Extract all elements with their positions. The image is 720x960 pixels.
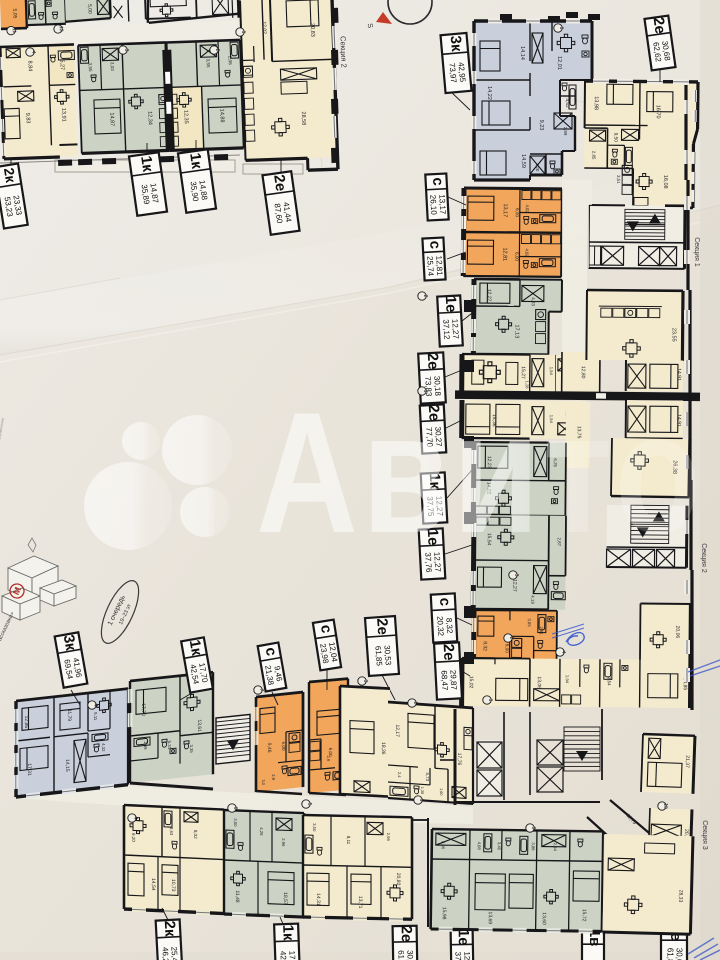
svg-text:13,91: 13,91 (60, 108, 66, 122)
svg-text:Секция 1: Секция 1 (693, 237, 700, 267)
svg-text:8,02: 8,02 (193, 830, 198, 840)
svg-text:3,09: 3,09 (527, 618, 532, 627)
svg-text:2,94: 2,94 (553, 843, 558, 852)
svg-text:17,76: 17,76 (456, 753, 462, 766)
svg-text:15,98: 15,98 (441, 907, 447, 920)
svg-text:3,03: 3,03 (110, 62, 115, 72)
svg-text:12,01: 12,01 (556, 56, 562, 70)
svg-text:25,74: 25,74 (425, 256, 435, 277)
svg-text:6,00: 6,00 (515, 208, 520, 217)
svg-text:6: 6 (232, 807, 238, 810)
svg-text:3,88: 3,88 (531, 842, 536, 851)
svg-text:13,71: 13,71 (357, 896, 363, 909)
svg-text:1,60: 1,60 (439, 788, 443, 796)
svg-text:Секция 2: Секция 2 (338, 36, 348, 68)
svg-text:12,17: 12,17 (394, 724, 400, 737)
svg-text:73,97: 73,97 (447, 63, 458, 84)
svg-text:8,84: 8,84 (26, 61, 32, 72)
svg-text:2: 2 (214, 49, 220, 52)
svg-text:13,06: 13,06 (536, 676, 542, 689)
svg-text:3к: 3к (447, 35, 465, 53)
svg-text:4,52: 4,52 (564, 98, 570, 108)
svg-text:14,88: 14,88 (218, 109, 224, 123)
svg-text:1к: 1к (279, 924, 297, 941)
svg-text:20,06: 20,06 (674, 626, 680, 639)
svg-text:16,08: 16,08 (662, 175, 668, 189)
svg-text:12: 12 (58, 26, 64, 32)
svg-text:3,35: 3,35 (189, 744, 194, 753)
svg-text:2,96: 2,96 (441, 841, 446, 850)
svg-text:2е: 2е (650, 16, 669, 35)
svg-text:9,20: 9,20 (131, 833, 136, 843)
svg-text:21,37: 21,37 (684, 755, 690, 768)
svg-text:12,2: 12,2 (462, 951, 471, 960)
svg-text:1,38: 1,38 (420, 787, 424, 795)
svg-text:16,70: 16,70 (655, 105, 661, 119)
svg-text:11: 11 (11, 28, 17, 34)
svg-text:28,33: 28,33 (677, 890, 683, 903)
svg-text:37,7: 37,7 (453, 952, 462, 960)
svg-text:12,80: 12,80 (580, 366, 586, 379)
svg-text:4,32: 4,32 (101, 743, 106, 752)
svg-text:2: 2 (422, 295, 428, 298)
svg-text:1: 1 (558, 27, 564, 30)
svg-text:46,2: 46,2 (160, 947, 170, 960)
svg-text:23,55: 23,55 (671, 328, 677, 342)
svg-text:61,1: 61,1 (396, 950, 405, 960)
svg-text:3,55: 3,55 (88, 63, 93, 73)
svg-text:14,59: 14,59 (520, 154, 526, 168)
svg-text:2: 2 (508, 637, 514, 640)
svg-text:14,14: 14,14 (519, 46, 525, 60)
svg-text:18,36: 18,36 (380, 742, 386, 755)
svg-text:2: 2 (412, 702, 418, 705)
svg-text:13,61: 13,61 (196, 719, 202, 732)
svg-text:Секция 3: Секция 3 (701, 820, 708, 850)
svg-text:4,19: 4,19 (530, 595, 535, 604)
svg-text:3: 3 (123, 49, 129, 52)
svg-text:2,89: 2,89 (563, 127, 568, 136)
svg-text:9,83: 9,83 (24, 113, 30, 124)
svg-text:9,11: 9,11 (93, 712, 98, 721)
svg-text:2,96: 2,96 (386, 833, 391, 842)
svg-text:11,48: 11,48 (234, 890, 240, 903)
svg-text:13,69: 13,69 (487, 912, 493, 925)
svg-text:14,54: 14,54 (150, 878, 156, 891)
svg-text:4: 4 (30, 51, 36, 54)
svg-text:6,00: 6,00 (281, 741, 286, 751)
svg-text:18,57: 18,57 (282, 892, 288, 905)
svg-text:1,94: 1,94 (549, 367, 554, 376)
svg-text:3: 3 (513, 574, 519, 577)
svg-text:2е: 2е (373, 618, 391, 636)
svg-text:61,8: 61,8 (665, 948, 674, 960)
svg-text:12,34: 12,34 (146, 111, 152, 125)
svg-text:17,70: 17,70 (140, 703, 146, 716)
svg-text:6,00: 6,00 (505, 644, 510, 653)
svg-text:14,22: 14,22 (486, 86, 492, 100)
svg-text:4,28: 4,28 (259, 827, 264, 836)
svg-text:4: 4 (560, 651, 566, 654)
svg-text:12,86: 12,86 (23, 715, 29, 728)
svg-text:15,72: 15,72 (581, 909, 587, 922)
svg-text:1: 1 (418, 799, 424, 802)
svg-text:5,73: 5,73 (425, 772, 430, 781)
svg-text:3,46: 3,46 (497, 842, 502, 851)
svg-text:8,32: 8,32 (482, 641, 488, 651)
svg-text:17,13: 17,13 (513, 324, 519, 338)
svg-text:10,73: 10,73 (170, 879, 176, 892)
svg-text:30,6: 30,6 (674, 948, 683, 960)
svg-text:17,31: 17,31 (26, 763, 32, 776)
svg-text:15,02: 15,02 (468, 676, 474, 689)
svg-text:5: 5 (306, 803, 312, 806)
svg-text:3,54: 3,54 (607, 677, 612, 686)
svg-text:4,02: 4,02 (524, 248, 529, 257)
svg-text:с: с (436, 597, 453, 606)
svg-text:68,47: 68,47 (439, 670, 449, 691)
svg-text:10: 10 (662, 803, 668, 809)
svg-text:2,91: 2,91 (539, 626, 544, 635)
svg-text:11,79: 11,79 (66, 709, 72, 722)
svg-text:6,00: 6,00 (514, 252, 519, 261)
svg-text:1к: 1к (137, 155, 156, 174)
svg-text:1: 1 (487, 699, 493, 702)
svg-text:42,1: 42,1 (278, 951, 288, 960)
svg-text:5,27: 5,27 (58, 59, 64, 70)
svg-text:1е: 1е (455, 929, 472, 946)
svg-text:30,2: 30,2 (405, 950, 414, 960)
svg-text:4: 4 (92, 704, 98, 707)
svg-text:Авито: Авито (256, 378, 705, 569)
svg-text:3,50: 3,50 (312, 823, 317, 832)
svg-text:2к: 2к (161, 920, 179, 937)
svg-text:4,02: 4,02 (525, 204, 530, 213)
svg-text:20,32: 20,32 (435, 616, 445, 637)
svg-text:12,02: 12,02 (261, 21, 267, 34)
svg-text:4,08: 4,08 (477, 842, 482, 851)
svg-text:13,60: 13,60 (541, 912, 547, 925)
svg-text:с: с (426, 240, 443, 249)
svg-text:2,96: 2,96 (281, 838, 286, 847)
svg-text:2,20: 2,20 (535, 163, 540, 172)
svg-text:14,87: 14,87 (108, 112, 114, 126)
svg-text:3,63: 3,63 (169, 827, 174, 836)
svg-text:12,27: 12,27 (511, 579, 517, 592)
svg-text:14,15: 14,15 (64, 759, 70, 772)
svg-text:13,17: 13,17 (502, 203, 508, 217)
svg-text:14,31: 14,31 (315, 893, 321, 906)
svg-text:8,11: 8,11 (346, 836, 351, 845)
svg-text:26,10: 26,10 (428, 195, 438, 216)
svg-text:2е: 2е (398, 925, 415, 942)
svg-text:3,50: 3,50 (233, 818, 238, 827)
svg-text:9,46: 9,46 (266, 742, 272, 753)
svg-text:3: 3 (362, 680, 368, 683)
svg-text:20,80: 20,80 (395, 873, 401, 886)
svg-text:1к: 1к (186, 152, 205, 171)
svg-text:20,83: 20,83 (309, 23, 315, 37)
svg-text:17,8: 17,8 (287, 950, 297, 960)
svg-text:12,35: 12,35 (182, 110, 188, 124)
svg-text:28,58: 28,58 (300, 111, 306, 125)
svg-text:2,85: 2,85 (591, 151, 596, 160)
svg-text:9,23: 9,23 (538, 120, 544, 131)
svg-text:4,83: 4,83 (531, 297, 536, 306)
svg-text:4: 4 (132, 817, 138, 820)
svg-text:1: 1 (240, 31, 246, 34)
svg-text:7: 7 (258, 689, 264, 692)
svg-text:61,85: 61,85 (373, 646, 383, 667)
svg-text:12,27: 12,27 (486, 289, 492, 302)
svg-text:2е: 2е (270, 173, 289, 192)
svg-text:2е: 2е (440, 643, 458, 661)
svg-text:2е: 2е (424, 352, 442, 370)
svg-text:9: 9 (530, 827, 536, 830)
svg-text:13,98: 13,98 (593, 96, 599, 110)
svg-text:1,94: 1,94 (565, 675, 570, 684)
svg-text:9,50: 9,50 (612, 133, 618, 143)
svg-text:1е: 1е (442, 295, 460, 313)
svg-text:5,05: 5,05 (11, 9, 17, 19)
svg-text:12,81: 12,81 (501, 247, 507, 261)
svg-text:3,55: 3,55 (206, 58, 211, 68)
svg-text:3,51: 3,51 (616, 175, 621, 184)
svg-text:37,12: 37,12 (441, 319, 451, 340)
svg-text:с: с (429, 177, 446, 186)
svg-text:5,00: 5,00 (86, 4, 92, 14)
